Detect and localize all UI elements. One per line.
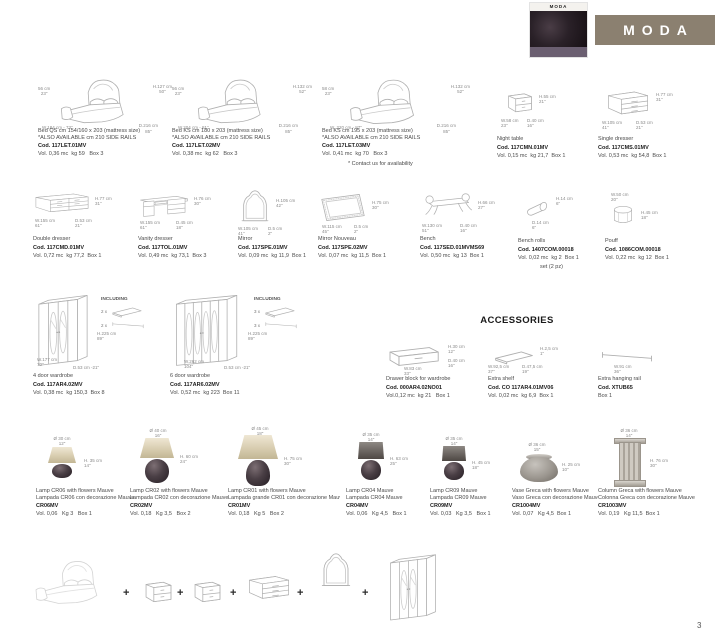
product-vase-greca: Ø 36 cm 15" H. 25 cm 10" Vase Greca with… [512,430,598,488]
lamp-cr02-figure: Ø 40 cm 16" H. 60 cm 24" [130,430,228,488]
double-dresser-drawing [33,190,91,214]
product-name: Pouff [605,238,669,245]
bed-ks180-drawing-area: 56 cm 23" H.132 cm 52" W.204 cm - 81" D.… [172,80,312,126]
bed-ks180-text: Bed KS cm 180 x 203 (mattress size) *ALS… [172,128,270,157]
product-name: Vase Greca with flowers Mauve [512,488,598,495]
rail-drawing [263,321,299,329]
product-code: CR01MV [228,503,340,509]
product-code: Cod. CO 117AR4.01MV06 [488,385,553,391]
lamp-shade [48,447,76,463]
lamp-base [52,464,72,478]
product-name: Lamp CR02 with flowers Mauve [130,488,228,495]
column-text: Column Greca with flowers Mauve Colonna … [598,488,695,517]
double-dresser-text: Double dresser Cod. 117CMD.01MV Vol. 0,7… [33,236,101,259]
product-code: Cod. 117CMN.01MV [497,145,565,151]
composition-night-table-drawing [191,576,224,604]
mirror-nouveau-drawing-area: H.75 cm 30" W.115 cm 45" D.5 cm 2" [318,190,418,234]
shelf-quantity: 3 x [254,309,260,314]
dim-width: W.91 cm 36" [614,364,632,375]
dim-height: H.132 cm 52" [293,84,312,95]
product-extra-shelf: H.2,5 cm 1" W.92,5 cm 37" D.47,5 cm 19" … [488,344,594,374]
dim-depth: D.47,5 cm 19" [522,364,543,375]
product-bench-rolls: H.14 cm 6" D.14 cm 6" Bench rolls Cod. 1… [518,192,600,234]
composition-night-table-drawing [142,576,175,604]
product-code: CR06MV [36,503,134,509]
dim-depth: D.216 cm 85" [437,123,456,134]
product-volume: Vol. 0,15 mc kg 21,7 Box 1 [497,153,565,159]
dim-height: H.127 cm 50" [153,84,172,95]
dim-depth: D.40 cm 16" [448,358,465,369]
dim-height: H.75 cm 30" [372,200,389,211]
dim-height: H.66 cm 27" [478,200,495,211]
product-name: 4 door wardrobe [33,373,105,380]
dim-height: H.132 cm 52" [451,84,470,95]
shelf-quantity: 2 x [101,309,107,314]
dim-height: H. 63 cm 25" [390,456,408,467]
dim-height: H.77 cm 31" [95,196,112,207]
product-name: Bed KS cm 180 x 203 (mattress size) [172,128,270,135]
rail-drawing [110,321,146,329]
lamp-shade [238,435,278,459]
bench-rolls-drawing-area: H.14 cm 6" D.14 cm 6" [518,192,600,234]
product-mirror-nouveau: H.75 cm 30" W.115 cm 45" D.5 cm 2" Mirro… [318,190,418,234]
vanity-text: Vanity dresser Cod. 117TOL.01MV Vol. 0,4… [138,236,206,259]
including-rail-row: 2 x [101,321,167,329]
vase-figure: Ø 36 cm 15" H. 25 cm 10" [512,430,598,488]
lamp-cr01-text: Lamp CR01 with flowers Mauve Lampada gra… [228,488,340,517]
product-name: Drawer block for wardrobe [386,376,451,383]
dim-height: H.77 cm 31" [656,92,673,103]
dim-height: H.2,5 cm 1" [540,346,558,357]
lamp-cr04-text: Lamp CR04 Mauve Lampada CR04 Mauve CR04M… [346,488,407,517]
product-name: Bed KS cm 195 x 203 (mattress size) [322,128,420,135]
product-name-it: Lampada CR09 Mauve [430,495,491,502]
bed-ks195-drawing-area: 58 cm 23" H.132 cm 52" W. 220 cm - 87" D… [322,80,470,126]
single-dresser-text: Single dresser Cod. 117CMS.01MV Vol. 0,5… [598,136,666,159]
dim-height: H.45 cm 18" [641,210,658,221]
product-code: Cod. 117CMD.01MV [33,245,101,251]
dim-side: 56 cm 23" [38,86,50,97]
product-name: Lamp CR06 with flowers Mauve [36,488,134,495]
wardrobe6-drawing [170,293,244,367]
product-single-dresser: H.77 cm 31" W.105 cm 41" D.53 cm 21" Sin… [598,84,715,134]
dim-height: H. 45 cm 18" [472,460,490,471]
mirror-drawing-area: H.105 cm 42" W.105 cm 41" D.5 cm 2" [238,190,316,234]
product-code: Cod. 117LET.01MV [38,143,140,149]
product-code: Cod. 117TOL.01MV [138,245,206,251]
plus-sign: + [230,587,236,599]
single-dresser-drawing [604,86,652,117]
column-figure: Ø 36 cm 14" H. 76 cm 30" [598,430,713,488]
product-volume: Vol. 0,52 mc kg 223 Box 11 [170,390,240,396]
product-name: Double dresser [33,236,101,243]
bed-qs-text: Bed QS cm 154/160 x 203 (mattress size) … [38,128,140,157]
product-bed-qs: 56 cm 23" H.127 cm 50" W.184 cm - 73" D.… [38,80,172,126]
dim-width: W.155 cm 61" [35,218,55,229]
dim-height: H. 75 cm 30" [284,456,302,467]
mirror-nouveau-drawing [318,192,368,223]
including-block: INCLUDING 3 x 3 x [254,297,314,332]
product-code: Cod. 117SPE.02MV [318,245,386,251]
dim-diameter: Ø 40 cm 16" [134,428,182,439]
wardrobe4-text: 4 door wardrobe Cod. 117AR4.02MV Vol. 0,… [33,373,105,396]
dim-width: W.262 cm 104" [184,359,204,370]
product-code: Cod. 117SED.01MVMS69 [420,245,484,251]
vanity-dresser-drawing [138,192,190,218]
product-volume: Vol. 0,18 Kg 3,5 Box 2 [130,511,228,517]
product-volume: Vol.0,12 mc kg 21 Box 1 [386,393,451,399]
vase-body [520,457,558,482]
lamp-cr04-figure: Ø 35 cm 14" H. 63 cm 25" [346,430,430,488]
extra-shelf-drawing-area: H.2,5 cm 1" W.92,5 cm 37" D.47,5 cm 19" [488,344,594,374]
bed-drawing [182,78,296,130]
product-volume: Vol. 0,72 mc kg 77,2 Box 1 [33,253,101,259]
dim-depth: D.40 cm 16" [527,118,544,129]
night-table-drawing-area: H.55 cm 21" W.58 cm 23" D.40 cm 16" [497,86,592,134]
product-bed-ks-180: 56 cm 23" H.132 cm 52" W.204 cm - 81" D.… [172,80,312,126]
wardrobe6-text: 6 door wardrobe Cod. 117AR6.02MV Vol. 0,… [170,373,240,396]
product-name-it: Lampada CR04 Mauve [346,495,407,502]
product-pouf: W.50 cm 20" H.45 cm 18" Pouff Cod. 1086C… [605,192,693,234]
mirror-drawing [238,190,272,224]
bench-roll-drawing [522,200,552,220]
drawer-block-drawing-area: H.30 cm 12" D.40 cm 16" W.83 cm 33" [386,342,488,374]
product-mirror: H.105 cm 42" W.105 cm 41" D.5 cm 2" Mirr… [238,190,316,234]
wardrobe4-drawing-area: INCLUDING 2 x 2 x H.225 cm 89" W.177 cm … [33,291,173,371]
dim-depth: D.53 cm 21" [636,120,653,131]
product-note: *ALSO AVAILABLE cm 210 SIDE RAILS [38,135,140,142]
page-number: 3 [697,621,701,630]
vanity-drawing-area: H.76 cm 30" W.155 cm 61" D.45 cm 18" [138,190,238,234]
lamp-base [145,459,169,483]
lamp-cr09-figure: Ø 35 cm 14" H. 45 cm 18" [430,430,510,488]
product-code: Cod. 117SPE.01MV [238,245,306,251]
lamp-base [444,462,464,480]
product-name: Extra hanging rail [598,376,641,383]
lamp-shade [442,446,466,461]
product-6-door-wardrobe: INCLUDING 3 x 3 x H.225 cm 89" W.262 cm … [170,291,308,371]
rail-quantity: 2 x [101,323,107,328]
dim-height: H. 76 cm 30" [650,458,668,469]
product-lamp-cr09: Ø 35 cm 14" H. 45 cm 18" Lamp CR09 Mauve… [430,430,510,488]
plus-sign: + [123,587,129,599]
extra-shelf-text: Extra shelf Cod. CO 117AR4.01MV06 Vol. 0… [488,376,553,399]
night-table-text: Night table Cod. 117CMN.01MV Vol. 0,15 m… [497,136,565,159]
product-name: Mirror Nouveau [318,236,386,243]
product-code: CR04MV [346,503,407,509]
dim-width: W.58 cm 23" [501,118,519,129]
product-extra-hanging-rail: W.91 cm 36" Extra hanging rail Cod. XTUB… [598,346,698,374]
product-volume: Vol. 0,50 mc kg 13 Box 1 [420,253,484,259]
product-name: Extra shelf [488,376,553,383]
accessories-section-title: ACCESSORIES [452,315,582,326]
dim-diameter: Ø 35 cm 14" [348,432,394,443]
dim-depth: D.14 cm 6" [532,220,549,231]
extra-rail-text: Extra hanging rail Cod. XTUB65 Box 1 [598,376,641,399]
product-volume: Vol. 0,07 mc kg 11,5 Box 1 [318,253,386,259]
product-name: Single dresser [598,136,666,143]
drawer-block-text: Drawer block for wardrobe Cod. 000AR4.02… [386,376,451,399]
mirror-text: Mirror Cod. 117SPE.01MV Vol. 0,09 mc kg … [238,236,306,259]
product-vanity-dresser: H.76 cm 30" W.155 cm 61" D.45 cm 18" Van… [138,190,238,234]
including-title: INCLUDING [254,297,314,302]
pouf-drawing-area: W.50 cm 20" H.45 cm 18" [605,192,693,234]
pouf-text: Pouff Cod. 1086COM.00018 Vol. 0,22 mc kg… [605,238,669,261]
product-note: *ALSO AVAILABLE cm 210 SIDE RAILS [172,135,270,142]
product-volume: Vol. 0,36 mc kg 59 Box 3 [38,151,140,157]
column-base [614,480,646,487]
dim-width: W.155 cm 61" [140,220,160,231]
dim-depth: D.53 cm 21" [75,218,92,229]
dim-depth: D.216 cm 85" [139,123,158,134]
product-volume: Vol. 0,18 Kg 5 Box 2 [228,511,340,517]
product-name: Vanity dresser [138,236,206,243]
product-code: Cod. XTUB65 [598,385,641,391]
dim-height: H.105 cm 42" [276,198,295,209]
product-volume: Vol. 0,03 Kg 3,5 Box 1 [430,511,491,517]
bed-drawing [334,78,450,131]
product-volume: Box 1 [598,393,641,399]
dim-depth: D.216 cm 85" [279,123,298,134]
product-code: Cod. 117LET.02MV [172,143,270,149]
dim-side: 56 cm 23" [172,86,184,97]
composition-bed-drawing [28,556,124,614]
lamp-cr06-text: Lamp CR06 with flowers Mauve Lampada CR0… [36,488,134,517]
lamp-shade [358,442,384,459]
including-rail-row: 3 x [254,321,314,329]
product-bench: H.66 cm 27" W.130 cm 51" D.40 cm 16" Ben… [420,190,516,234]
dim-depth: D.45 cm 18" [176,220,193,231]
bed-drawing [46,78,158,130]
dim-height: H.55 cm 21" [539,94,556,105]
product-column-greca: Ø 36 cm 14" H. 76 cm 30" Column Greca wi… [598,430,713,488]
product-code: Cod. 117AR4.02MV [33,382,105,388]
dim-depth: D.40 cm 16" [460,223,477,234]
rail-quantity: 3 x [254,323,260,328]
shelf-drawing [110,305,144,318]
dim-width: W.115 cm 45" [322,224,342,235]
product-name-it: Lampada CR06 con decorazione Mauve [36,495,134,502]
product-code: Cod. 1086COM.00018 [605,247,669,253]
product-lamp-cr06: Ø 30 cm 12" H. 35 cm 14" Lamp CR06 with … [36,430,128,488]
vase-text: Vase Greca with flowers Mauve Vaso Greca… [512,488,598,517]
lamp-cr06-figure: Ø 30 cm 12" H. 35 cm 14" [36,430,128,488]
dim-depth: D.53 cm -21" [224,365,250,370]
product-code: Cod. 000AR4.02NO01 [386,385,451,391]
including-shelf-row: 3 x [254,305,314,318]
product-volume: Vol. 0,41 mc kg 70 Box 3 [322,151,420,157]
extra-rail-drawing-area: W.91 cm 36" [598,346,698,374]
product-lamp-cr04: Ø 35 cm 14" H. 63 cm 25" Lamp CR04 Mauve… [346,430,430,488]
bench-drawing-area: H.66 cm 27" W.130 cm 51" D.40 cm 16" [420,190,516,234]
dim-side: 58 cm 23" [322,86,334,97]
product-volume: Vol. 0,53 mc kg 54,8 Box 1 [598,153,666,159]
contact-note: * Contact us for availability [322,161,420,167]
product-code: CR1003MV [598,503,695,509]
product-name-it: Lampada grande CR01 con decorazione Mauv… [228,495,340,502]
lamp-cr09-text: Lamp CR09 Mauve Lampada CR09 Mauve CR09M… [430,488,491,517]
product-name: Night table [497,136,565,143]
product-name: Lamp CR09 Mauve [430,488,491,495]
dim-width: W.50 cm 20" [611,192,629,203]
extra-shelf-drawing [492,348,536,365]
product-code: CR02MV [130,503,228,509]
product-drawer-block: H.30 cm 12" D.40 cm 16" W.83 cm 33" Draw… [386,342,488,374]
product-name: Bed QS cm 154/160 x 203 (mattress size) [38,128,140,135]
product-name: 6 door wardrobe [170,373,240,380]
dim-height: H.225 cm 89" [248,331,267,342]
dim-height: H. 60 cm 24" [180,454,198,465]
dim-diameter: Ø 30 cm 12" [38,436,86,447]
product-volume: Vol. 0,02 mc kg 2 Box 1 [518,255,579,261]
dim-width: W.130 cm 51" [422,223,442,234]
product-volume: Vol. 0,19 Kg 11,5 Box 1 [598,511,695,517]
product-volume: Vol. 0,22 mc kg 12 Box 1 [605,255,669,261]
plus-sign: + [177,587,183,599]
product-code: Cod. 117AR6.02MV [170,382,240,388]
product-name: Bench [420,236,484,243]
product-volume: Vol. 0,02 mc kg 6,9 Box 1 [488,393,553,399]
product-name-it: Colonna Greca con decorazione Mauve [598,495,695,502]
product-name-it: Vaso Greca con decorazione Mauve [512,495,598,502]
including-block: INCLUDING 2 x 2 x [101,297,167,332]
pouf-drawing [611,204,635,226]
product-volume: Vol. 0,06 Kg 3 Box 1 [36,511,134,517]
product-bed-ks-195: 58 cm 23" H.132 cm 52" W. 220 cm - 87" D… [322,80,470,126]
product-volume: Vol. 0,38 mc kg 150,3 Box 8 [33,390,105,396]
dim-height: H.14 cm 6" [556,196,573,207]
catalog-cover-thumbnail: MODA [530,3,587,57]
product-name: Lamp CR01 with flowers Mauve [228,488,340,495]
extra-rail-drawing [598,350,656,363]
plus-sign: + [362,587,368,599]
product-code: CR1004MV [512,503,598,509]
lamp-shade [140,438,174,458]
product-note: *ALSO AVAILABLE cm 210 SIDE RAILS [322,135,420,142]
product-volume: Vol. 0,06 Kg 4,5 Box 1 [346,511,407,517]
product-code: Cod. 1407COM.00018 [518,247,579,253]
bench-rolls-text: Bench rolls Cod. 1407COM.00018 Vol. 0,02… [518,238,579,270]
wardrobe4-drawing [33,293,93,367]
column-shaft [619,442,641,482]
product-code: Cod. 117LET.03MV [322,143,420,149]
dim-diameter: Ø 36 cm 15" [514,442,560,453]
product-4-door-wardrobe: INCLUDING 2 x 2 x H.225 cm 89" W.177 cm … [33,291,173,371]
product-lamp-cr01: Ø 45 cm 18" H. 75 cm 30" Lamp CR01 with … [228,430,340,488]
product-name: Bench rolls [518,238,579,245]
product-volume: Vol. 0,07 Kg 4,5 Box 1 [512,511,598,517]
wardrobe6-drawing-area: INCLUDING 3 x 3 x H.225 cm 89" W.262 cm … [170,291,308,371]
dim-depth: D.5 cm 2" [354,224,368,235]
product-night-table: H.55 cm 21" W.58 cm 23" D.40 cm 16" Nigh… [497,86,592,134]
mirror-nouveau-text: Mirror Nouveau Cod. 117SPE.02MV Vol. 0,0… [318,236,386,259]
brand-title: MODA [616,22,694,38]
product-name: Lamp CR04 Mauve [346,488,407,495]
product-volume: Vol. 0,49 mc kg 73,1 Box 3 [138,253,206,259]
product-name: Mirror [238,236,306,243]
thumbnail-footer-band [530,47,587,57]
product-code: CR09MV [430,503,491,509]
dim-width: W.177 cm 70" [37,357,57,368]
dim-diameter: Ø 35 cm 14" [432,436,476,447]
thumbnail-brand-label: MODA [530,3,587,11]
product-code: Cod. 117CMS.01MV [598,145,666,151]
dim-width: W.92,5 cm 37" [488,364,509,375]
dim-width: W.105 cm 41" [602,120,622,131]
bed-ks195-text: Bed KS cm 195 x 203 (mattress size) *ALS… [322,128,420,167]
shelf-drawing [263,305,297,318]
set-note: set (2 pz) [518,264,579,270]
dim-depth: D.53 cm -21" [73,365,99,370]
product-volume: Vol. 0,38 mc kg 62 Box 3 [172,151,270,157]
lamp-base [246,460,270,486]
dim-height: H. 25 cm 10" [562,462,580,473]
product-volume: Vol. 0,09 mc kg 11,9 Box 1 [238,253,306,259]
lamp-base [361,460,381,480]
lamp-cr01-figure: Ø 45 cm 18" H. 75 cm 30" [228,430,340,488]
dim-height: H. 35 cm 14" [84,458,102,469]
composition-mirror-drawing [318,552,354,590]
night-table-drawing [505,88,535,114]
dim-height: H.76 cm 30" [194,196,211,207]
product-name-it: Lampada CR02 con decorazione Mauve [130,495,228,502]
including-shelf-row: 2 x [101,305,167,318]
bench-drawing [420,190,476,221]
product-name: Column Greca with flowers Mauve [598,488,695,495]
lamp-cr02-text: Lamp CR02 with flowers Mauve Lampada CR0… [130,488,228,517]
moda-brand-banner: MODA [595,15,715,45]
including-title: INCLUDING [101,297,167,302]
product-lamp-cr02: Ø 40 cm 16" H. 60 cm 24" Lamp CR02 with … [130,430,228,488]
dim-height: H.225 cm 89" [97,331,116,342]
thumbnail-photo [530,11,587,47]
composition-wardrobe-drawing [386,545,440,629]
bed-qs-drawing-area: 56 cm 23" H.127 cm 50" W.184 cm - 73" D.… [38,80,172,126]
bench-text: Bench Cod. 117SED.01MVMS69 Vol. 0,50 mc … [420,236,484,259]
dim-height: H.30 cm 12" [448,344,465,355]
composition-dresser-drawing [245,570,293,602]
plus-sign: + [297,587,303,599]
single-dresser-drawing-area: H.77 cm 31" W.105 cm 41" D.53 cm 21" [598,84,715,134]
